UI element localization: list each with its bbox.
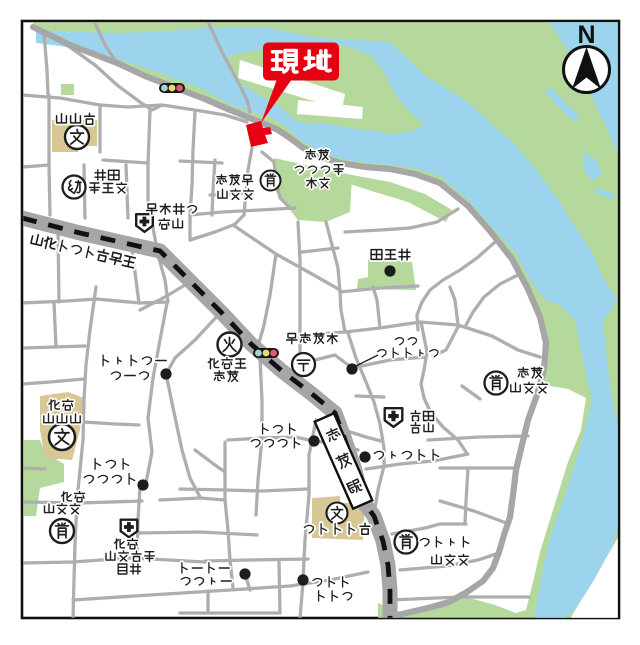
svg-text:N: N [577,21,595,49]
